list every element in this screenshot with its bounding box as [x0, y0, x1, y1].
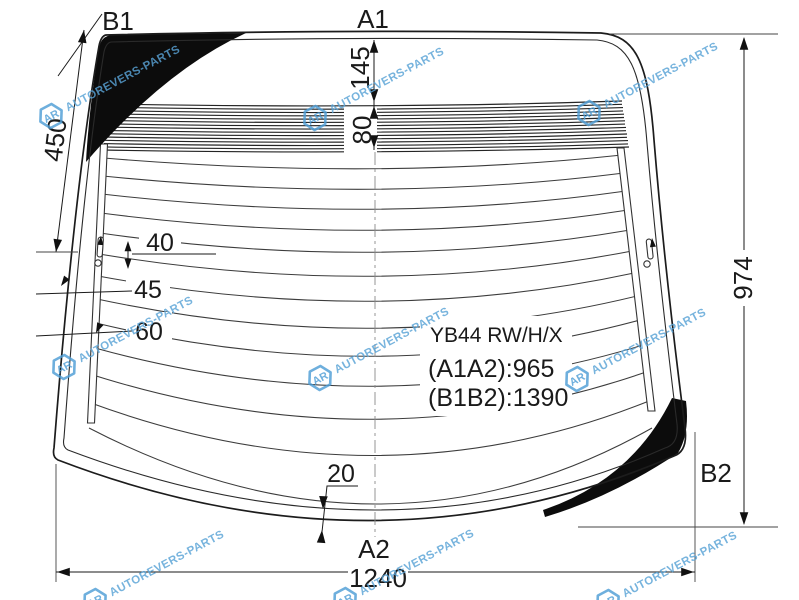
watermark: AR AUTOREVERS-PARTS [593, 525, 741, 600]
left-bus-bar [88, 144, 108, 423]
watermark-text: AUTOREVERS-PARTS [108, 529, 227, 600]
label-b1: B1 [102, 6, 134, 36]
watermark-text: AUTOREVERS-PARTS [621, 530, 740, 600]
part-a1a2: (A1A2):965 [428, 355, 554, 383]
rear-window-diagram: B1 A1 B2 A2 450 145 80 40 45 60 20 974 1… [0, 0, 799, 600]
watermark: AR AUTOREVERS-PARTS [562, 302, 710, 394]
label-a2: A2 [358, 534, 390, 564]
watermark-text: AUTOREVERS-PARTS [602, 41, 721, 112]
watermark: AR AUTOREVERS-PARTS [574, 36, 722, 128]
dim-20: 20 [327, 460, 355, 488]
label-a1: A1 [357, 4, 389, 34]
right-bus-bar [617, 148, 655, 411]
watermark: AR AUTOREVERS-PARTS [80, 524, 228, 600]
label-b2: B2 [700, 458, 732, 488]
right-connector [644, 238, 656, 268]
dim-80: 80 [347, 116, 377, 145]
glass-diagram-page: B1 A1 B2 A2 450 145 80 40 45 60 20 974 1… [0, 0, 799, 600]
part-code: YB44 RW/H/X [430, 324, 563, 347]
watermark: AR AUTOREVERS-PARTS [49, 290, 197, 382]
dim-45: 45 [134, 276, 162, 304]
dim-40: 40 [146, 229, 174, 257]
dim-974: 974 [728, 256, 758, 299]
part-b1b2: (B1B2):1390 [428, 384, 568, 412]
part-label-block: YB44 RW/H/X (A1A2):965 (B1B2):1390 [428, 324, 568, 412]
